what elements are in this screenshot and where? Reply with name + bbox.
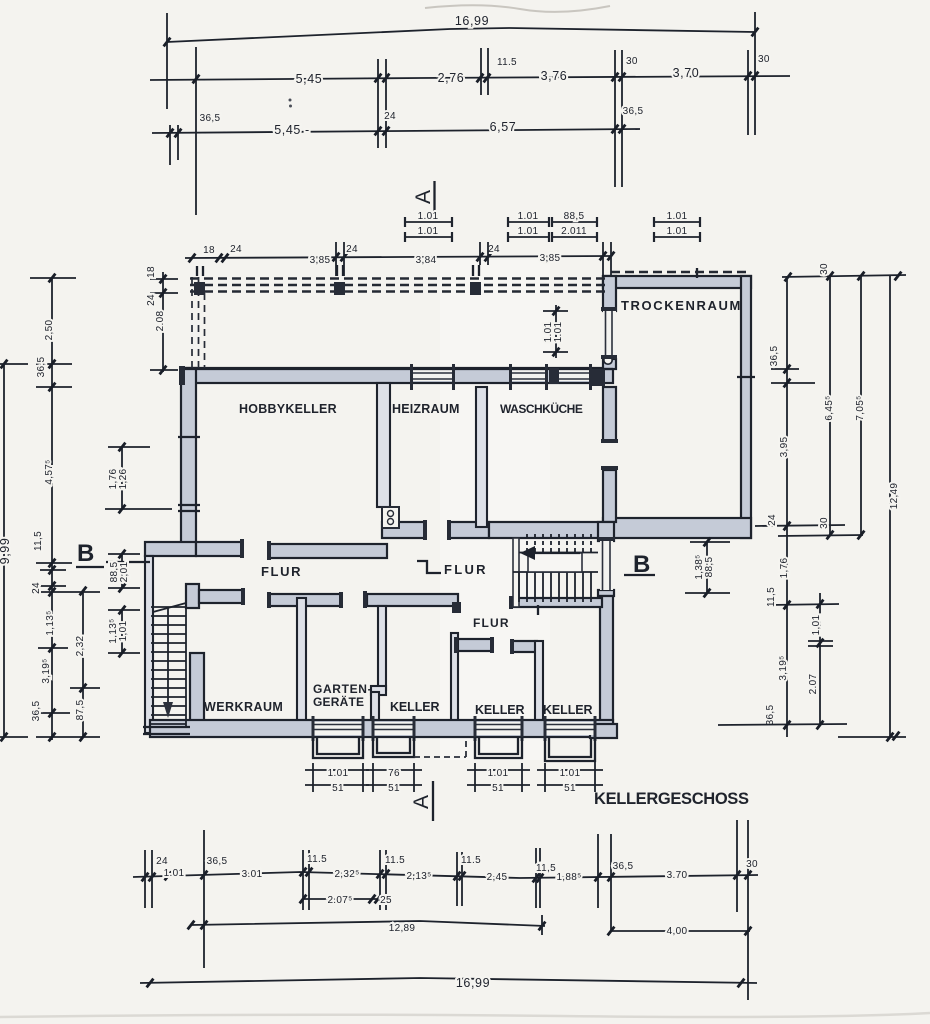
svg-text:30: 30 [819, 517, 830, 529]
svg-text:3,84: 3,84 [416, 255, 437, 266]
svg-text:HEIZRAUM: HEIZRAUM [392, 402, 460, 416]
svg-text:3.70: 3.70 [667, 870, 688, 881]
svg-text:88,5: 88,5 [564, 211, 585, 222]
svg-text:9,99: 9,99 [0, 538, 12, 565]
svg-text:1,88⁵: 1,88⁵ [556, 872, 581, 883]
svg-text:1.01: 1.01 [553, 322, 564, 343]
svg-text:5,45: 5,45 [296, 72, 323, 86]
svg-text:1,01: 1,01 [118, 621, 129, 642]
svg-text:24: 24 [146, 294, 157, 306]
svg-text:3,76: 3,76 [541, 69, 568, 83]
svg-text:1.01: 1.01 [518, 226, 539, 237]
svg-text:B: B [77, 540, 94, 567]
svg-text:3.01: 3.01 [242, 869, 263, 880]
svg-text:36,5: 36,5 [31, 701, 42, 722]
svg-text:88,5: 88,5 [704, 557, 715, 578]
svg-text:1.01: 1.01 [518, 211, 539, 222]
svg-text:36,5: 36,5 [623, 106, 644, 117]
svg-text:2.08: 2.08 [155, 311, 166, 332]
svg-text:36,5: 36,5 [765, 705, 776, 726]
svg-text:1.01: 1.01 [667, 211, 688, 222]
svg-text:6,45⁵: 6,45⁵ [824, 395, 835, 420]
svg-text:2,76: 2,76 [438, 71, 465, 85]
svg-text:5,45 -: 5,45 - [274, 123, 310, 137]
svg-text:16,99: 16,99 [455, 14, 489, 28]
svg-text:1,01: 1,01 [811, 615, 822, 636]
svg-text:1,13⁵: 1,13⁵ [45, 610, 56, 635]
svg-text:KELLER: KELLER [475, 703, 524, 717]
svg-text:3,85: 3,85 [540, 253, 561, 264]
svg-text:87,5: 87,5 [75, 700, 86, 721]
svg-text:18: 18 [203, 245, 215, 256]
svg-text:1.01: 1.01 [667, 226, 688, 237]
svg-text:36,5: 36,5 [36, 357, 47, 378]
svg-text:2,32: 2,32 [75, 636, 86, 657]
svg-text:3,85: 3,85 [310, 255, 331, 266]
svg-text:36,5: 36,5 [207, 856, 228, 867]
svg-text:12,49: 12,49 [889, 483, 900, 510]
svg-text:76: 76 [388, 768, 400, 779]
svg-text:4,00: 4,00 [667, 926, 688, 937]
svg-text:24: 24 [488, 244, 500, 255]
svg-text:1.01: 1.01 [418, 211, 439, 222]
svg-text:11,5: 11,5 [33, 531, 44, 551]
svg-text:30: 30 [819, 263, 830, 275]
svg-text:6,57: 6,57 [490, 120, 517, 134]
svg-text:KELLERGESCHOSS: KELLERGESCHOSS [594, 790, 749, 808]
svg-text:11.5: 11.5 [385, 855, 405, 866]
svg-text:1,76: 1,76 [779, 558, 790, 579]
svg-text:24: 24 [156, 856, 168, 867]
svg-text:WERKRAUM: WERKRAUM [204, 700, 283, 714]
svg-text:A: A [410, 795, 433, 809]
svg-text:FLUR: FLUR [473, 616, 510, 630]
svg-text:51: 51 [564, 783, 576, 794]
svg-text:24: 24 [767, 514, 778, 526]
svg-text:2.07: 2.07 [808, 674, 819, 695]
svg-text:3,70: 3,70 [673, 66, 700, 80]
svg-text:2,32⁵: 2,32⁵ [334, 869, 359, 880]
svg-text:36,5: 36,5 [769, 346, 780, 367]
svg-text:2,45: 2,45 [487, 872, 508, 883]
svg-text:HOBBYKELLER: HOBBYKELLER [239, 402, 337, 416]
svg-text:FLUR: FLUR [261, 564, 302, 579]
svg-text:51: 51 [492, 783, 504, 794]
svg-text:KELLER: KELLER [390, 700, 439, 714]
svg-text:51: 51 [388, 783, 400, 794]
svg-text:36,5: 36,5 [200, 113, 221, 124]
svg-text:2.07⁵: 2.07⁵ [327, 895, 352, 906]
svg-text:11,5: 11,5 [536, 863, 556, 874]
svg-text:1.01: 1.01 [488, 768, 509, 779]
svg-text:30: 30 [758, 54, 770, 65]
svg-text:A: A [412, 190, 435, 204]
svg-text:11.5: 11.5 [307, 854, 327, 865]
svg-text:2.011: 2.011 [561, 226, 587, 237]
svg-text:24: 24 [230, 244, 242, 255]
svg-text:18: 18 [146, 266, 157, 278]
svg-text:11.5: 11.5 [461, 855, 481, 866]
svg-text:30: 30 [626, 56, 638, 67]
svg-text:7,05⁵: 7,05⁵ [855, 395, 866, 420]
svg-text:11.5: 11.5 [497, 57, 517, 68]
svg-text:4,57⁵: 4,57⁵ [44, 459, 55, 484]
svg-text:1.01: 1.01 [418, 226, 439, 237]
svg-text:51: 51 [332, 783, 344, 794]
svg-text:3,19⁵: 3,19⁵ [41, 658, 52, 683]
svg-text:TROCKENRAUM: TROCKENRAUM [621, 298, 742, 313]
svg-text:3,95: 3,95 [779, 437, 790, 458]
svg-text:KELLER: KELLER [543, 703, 592, 717]
svg-text:3,19⁵: 3,19⁵ [778, 655, 789, 680]
svg-text:GARTEN-: GARTEN- [313, 682, 372, 696]
svg-text:12,89: 12,89 [389, 923, 416, 934]
svg-text:2,50: 2,50 [44, 320, 55, 341]
svg-text:24: 24 [384, 111, 396, 122]
svg-text:1,26: 1,26 [118, 469, 129, 490]
svg-text:24: 24 [346, 244, 358, 255]
svg-text:2,01: 2,01 [119, 562, 130, 583]
svg-text:FLUR: FLUR [444, 562, 488, 577]
svg-text:25: 25 [380, 895, 392, 906]
svg-text:GERÄTE: GERÄTE [313, 694, 364, 709]
svg-text:11,5: 11,5 [766, 587, 777, 607]
svg-text:36,5: 36,5 [613, 861, 634, 872]
svg-text:1.01: 1.01 [560, 768, 581, 779]
svg-text:1.01: 1.01 [164, 868, 185, 879]
svg-text:16,99: 16,99 [456, 976, 490, 990]
svg-text:WASCHKÜCHE: WASCHKÜCHE [500, 401, 583, 416]
svg-text:24: 24 [31, 582, 42, 594]
svg-text:1.01: 1.01 [328, 768, 349, 779]
svg-text:2,13⁵: 2,13⁵ [406, 871, 431, 882]
svg-text:30: 30 [746, 859, 758, 870]
